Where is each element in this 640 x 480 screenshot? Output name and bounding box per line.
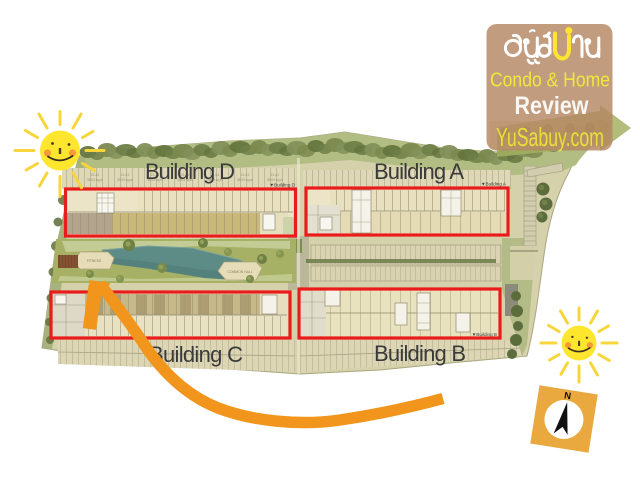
svg-text:▼Building A: ▼Building A <box>481 182 507 187</box>
svg-text:35.04 sq.m: 35.04 sq.m <box>267 178 284 182</box>
svg-text:Review: Review <box>515 92 589 120</box>
svg-text:▼Building D: ▼Building D <box>270 183 296 188</box>
svg-text:Building A: Building A <box>374 159 464 184</box>
svg-text:21-41: 21-41 <box>91 173 100 177</box>
svg-text:35.04 sq.m: 35.04 sq.m <box>237 178 254 182</box>
svg-text:Building B: Building B <box>374 341 466 366</box>
svg-text:COMMON HALL: COMMON HALL <box>227 270 252 274</box>
svg-text:35.04 sq.m: 35.04 sq.m <box>87 178 104 182</box>
svg-text:▼Building B: ▼Building B <box>472 332 497 337</box>
svg-text:Condo & Home: Condo & Home <box>490 70 610 92</box>
svg-text:21-41: 21-41 <box>241 173 250 177</box>
svg-text:YuSabuy.com: YuSabuy.com <box>496 122 604 152</box>
svg-text:21-41: 21-41 <box>271 173 280 177</box>
svg-text:21-41: 21-41 <box>121 173 130 177</box>
svg-text:FITNESS: FITNESS <box>87 259 102 263</box>
svg-text:35.04 sq.m: 35.04 sq.m <box>117 178 134 182</box>
svg-text:Building D: Building D <box>145 159 235 184</box>
